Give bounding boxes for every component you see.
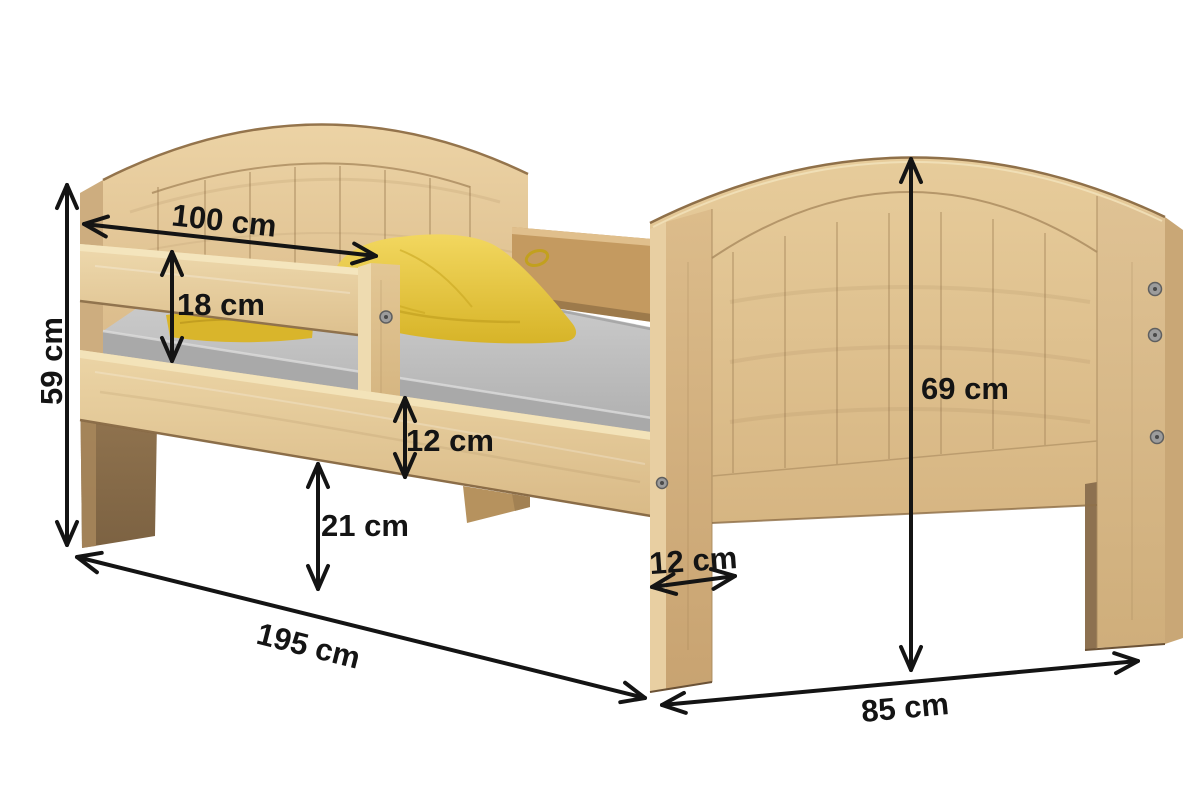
dim-label-footboard-height: 69 cm — [921, 371, 1009, 406]
footboard-panel — [650, 157, 1165, 526]
dim-label-side-rail-height: 12 cm — [406, 423, 494, 458]
dim-label-footboard-width: 85 cm — [860, 686, 951, 729]
bed-dimension-diagram: 100 cm 18 cm 59 cm 12 cm 21 cm 195 cm 12… — [0, 0, 1200, 800]
dim-label-foot-leg-width: 12 cm — [648, 540, 738, 581]
dim-label-under-bed-clearance: 21 cm — [321, 508, 409, 543]
dim-arrow-bed-length — [77, 557, 645, 698]
middle-leg-shade — [512, 494, 530, 511]
footboard-right-leg-inner — [1085, 482, 1097, 651]
guard-post-screw-center — [384, 315, 388, 319]
footboard — [650, 157, 1183, 693]
footboard-right-side-face — [1165, 217, 1183, 644]
bed-diagram-canvas: 100 cm 18 cm 59 cm 12 cm 21 cm 195 cm 12… — [0, 0, 1200, 800]
dim-label-guard-rail-height: 18 cm — [177, 287, 265, 322]
dim-label-headboard-height: 59 cm — [34, 317, 69, 405]
footboard-left-stile-side — [650, 222, 666, 693]
